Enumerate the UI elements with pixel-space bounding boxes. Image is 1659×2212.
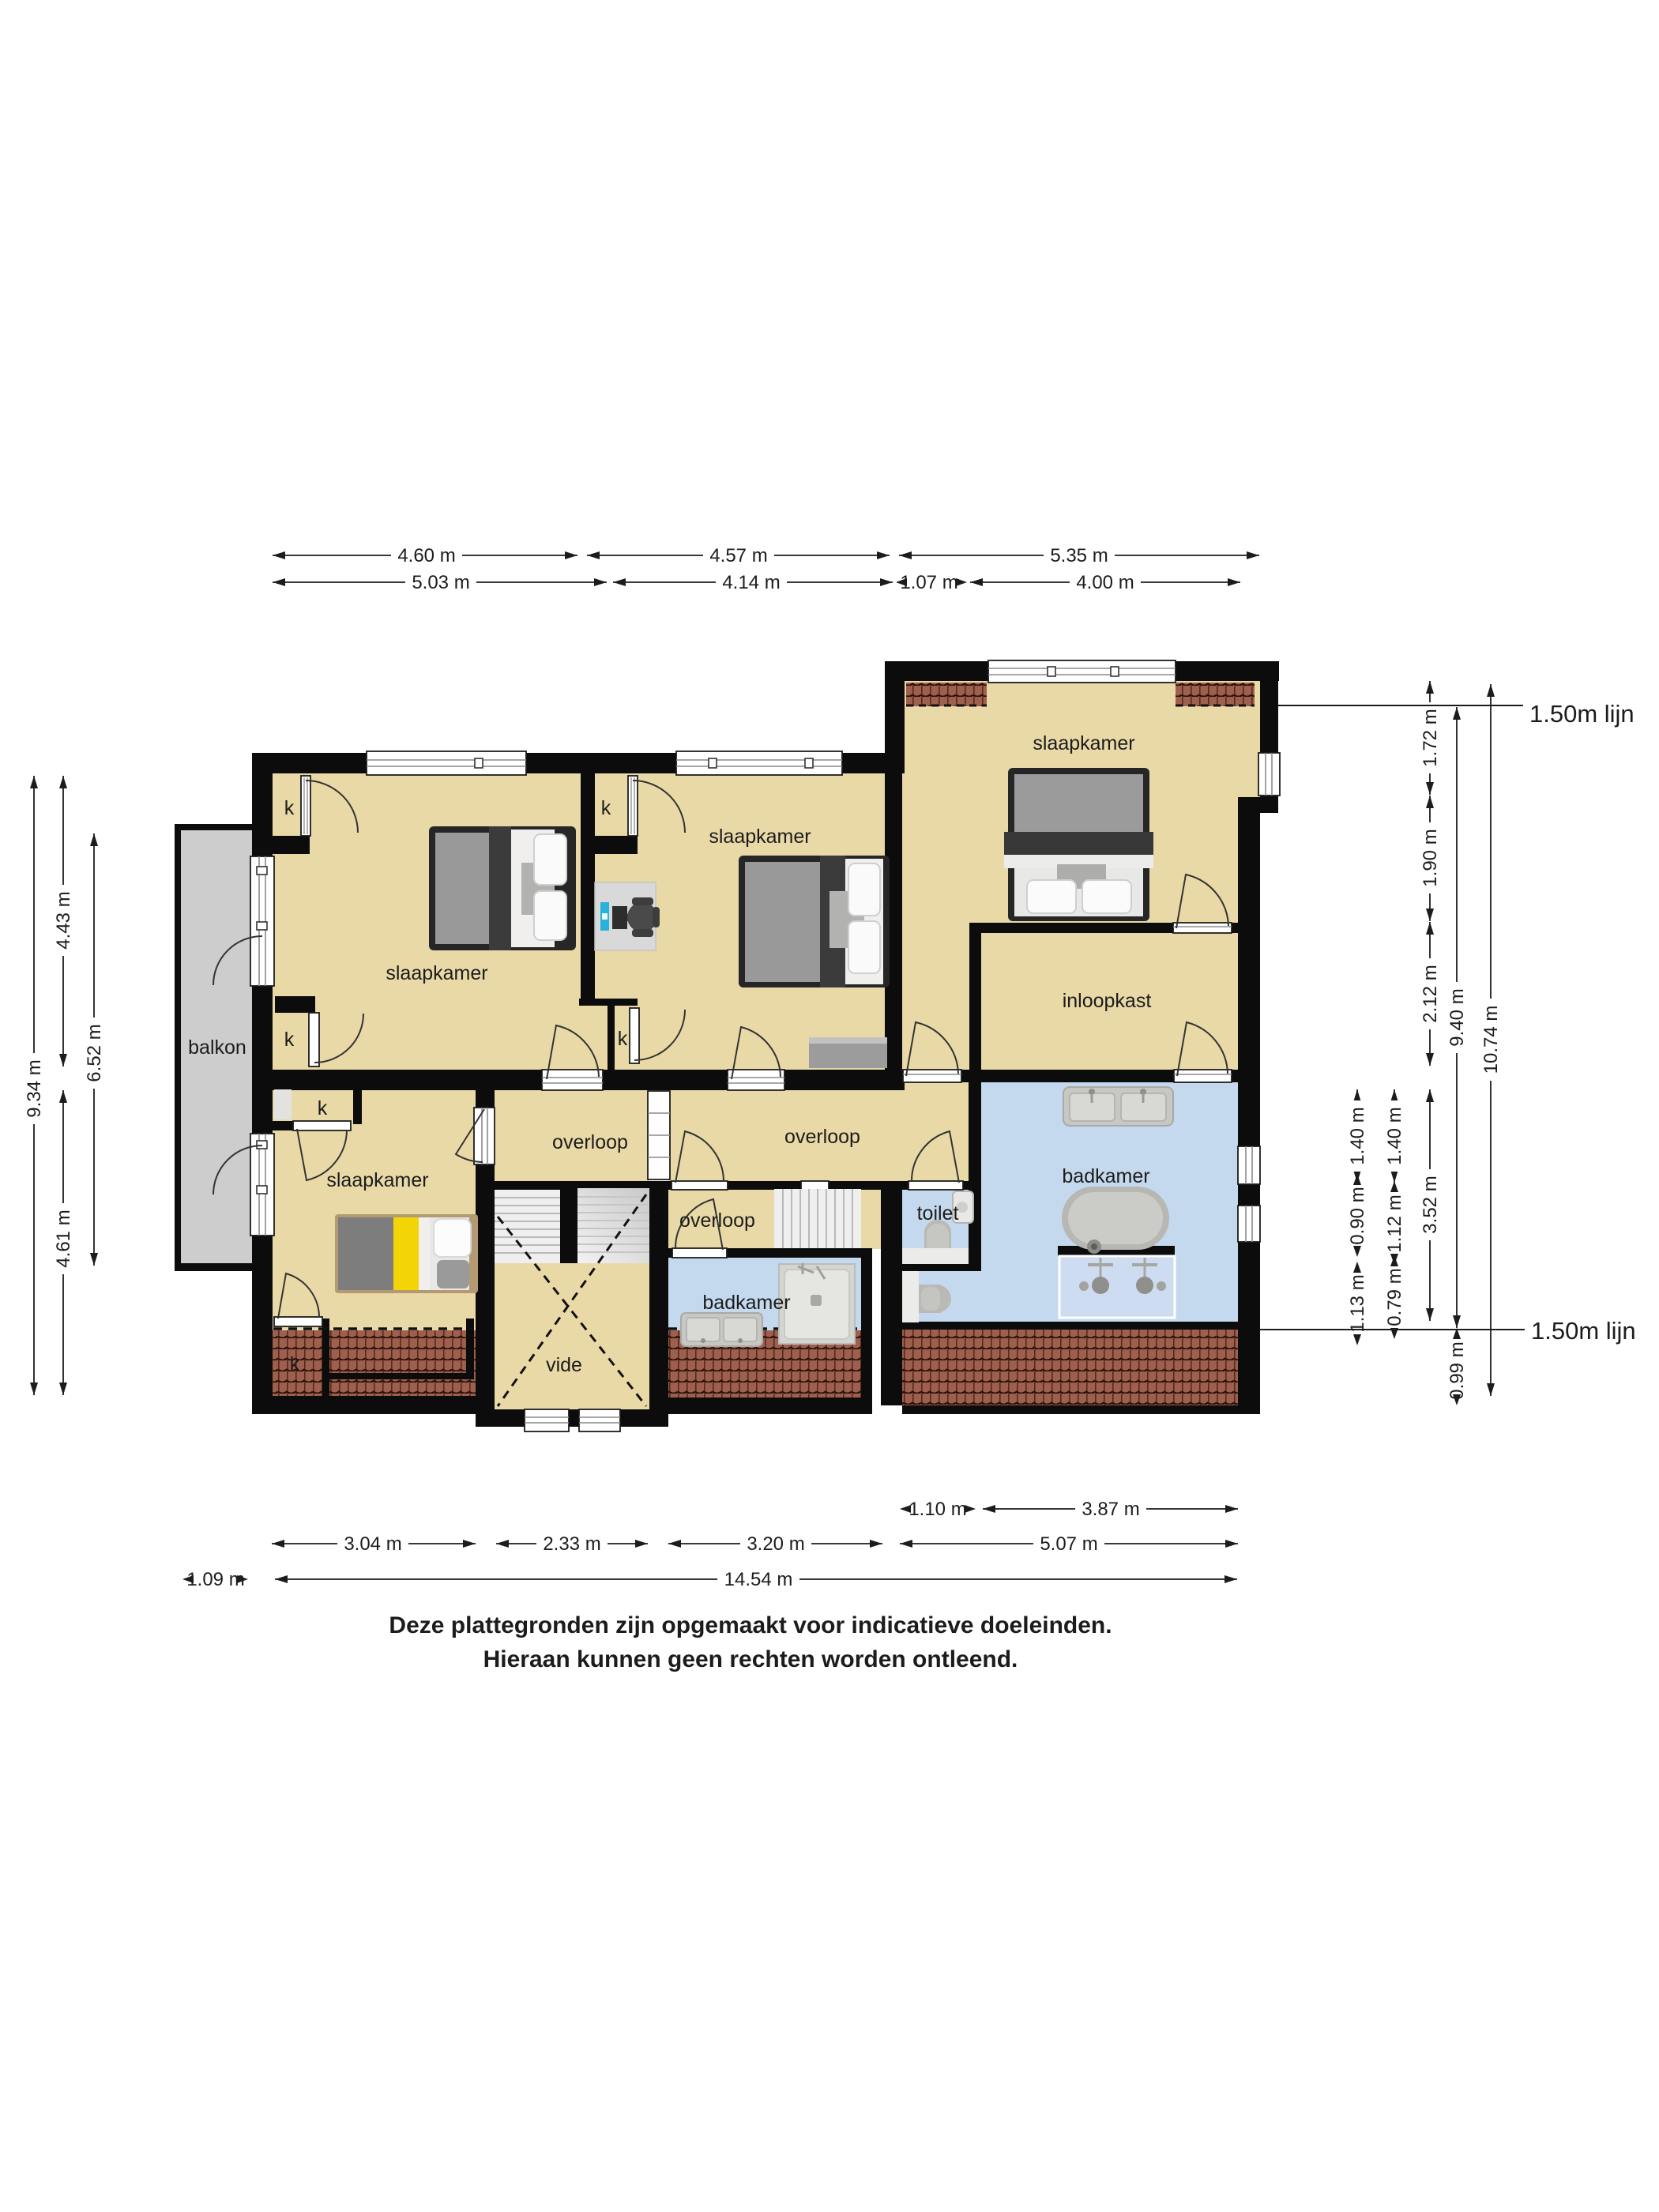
svg-text:slaapkamer: slaapkamer (326, 1169, 428, 1191)
svg-text:14.54 m: 14.54 m (724, 1569, 793, 1590)
svg-text:4.00 m: 4.00 m (1076, 572, 1134, 593)
svg-text:overloop: overloop (552, 1131, 628, 1153)
svg-text:10.74 m: 10.74 m (1480, 1006, 1502, 1074)
svg-text:9.34 m: 9.34 m (24, 1059, 45, 1117)
svg-text:1.90 m: 1.90 m (1420, 829, 1441, 886)
svg-text:overloop: overloop (784, 1126, 860, 1148)
svg-text:0.99 m: 0.99 m (1446, 1341, 1468, 1399)
svg-text:3.87 m: 3.87 m (1082, 1499, 1139, 1520)
svg-text:slaapkamer: slaapkamer (1033, 732, 1134, 754)
svg-text:4.60 m: 4.60 m (397, 545, 455, 566)
svg-text:1.50m lijn: 1.50m lijn (1531, 1317, 1636, 1345)
svg-text:0.79 m: 0.79 m (1384, 1268, 1405, 1326)
svg-text:inloopkast: inloopkast (1063, 990, 1152, 1012)
svg-text:k: k (290, 1353, 300, 1375)
svg-text:k: k (318, 1097, 328, 1119)
svg-text:badkamer: badkamer (1062, 1165, 1149, 1187)
svg-text:2.12 m: 2.12 m (1420, 965, 1441, 1022)
svg-text:4.14 m: 4.14 m (722, 572, 780, 593)
svg-text:overloop: overloop (679, 1209, 755, 1232)
svg-text:4.57 m: 4.57 m (709, 545, 767, 566)
svg-text:k: k (284, 797, 295, 819)
svg-text:Deze plattegronden zijn opgema: Deze plattegronden zijn opgemaakt voor i… (389, 1612, 1112, 1638)
svg-text:1.09 m: 1.09 m (186, 1569, 244, 1590)
svg-text:vide: vide (546, 1354, 582, 1376)
svg-text:1.50m lijn: 1.50m lijn (1529, 700, 1635, 728)
svg-text:Hieraan kunnen geen rechten wo: Hieraan kunnen geen rechten worden ontle… (483, 1646, 1018, 1672)
svg-text:slaapkamer: slaapkamer (709, 826, 811, 848)
svg-text:1.40 m: 1.40 m (1384, 1107, 1405, 1164)
svg-text:1.12 m: 1.12 m (1384, 1194, 1405, 1252)
svg-text:1.40 m: 1.40 m (1347, 1107, 1368, 1164)
svg-text:4.43 m: 4.43 m (53, 891, 74, 949)
svg-text:3.52 m: 3.52 m (1420, 1176, 1441, 1233)
svg-text:3.04 m: 3.04 m (344, 1533, 401, 1555)
svg-text:1.13 m: 1.13 m (1347, 1274, 1368, 1332)
svg-text:1.10 m: 1.10 m (908, 1499, 966, 1520)
svg-text:toilet: toilet (917, 1202, 959, 1224)
svg-text:3.20 m: 3.20 m (747, 1533, 804, 1555)
svg-text:balkon: balkon (188, 1036, 246, 1059)
svg-text:4.61 m: 4.61 m (53, 1209, 74, 1267)
svg-text:k: k (284, 1029, 295, 1051)
svg-text:k: k (618, 1028, 628, 1050)
svg-text:6.52 m: 6.52 m (84, 1024, 105, 1082)
svg-text:5.03 m: 5.03 m (412, 572, 469, 593)
svg-text:1.72 m: 1.72 m (1420, 709, 1441, 766)
svg-text:badkamer: badkamer (702, 1292, 790, 1314)
svg-text:9.40 m: 9.40 m (1446, 988, 1468, 1046)
svg-text:5.07 m: 5.07 m (1040, 1533, 1097, 1555)
svg-text:k: k (601, 797, 611, 819)
svg-text:2.33 m: 2.33 m (543, 1533, 600, 1555)
svg-text:1.07 m: 1.07 m (900, 572, 957, 593)
svg-text:0.90 m: 0.90 m (1347, 1187, 1368, 1244)
svg-text:5.35 m: 5.35 m (1050, 545, 1108, 566)
svg-text:slaapkamer: slaapkamer (386, 962, 487, 984)
